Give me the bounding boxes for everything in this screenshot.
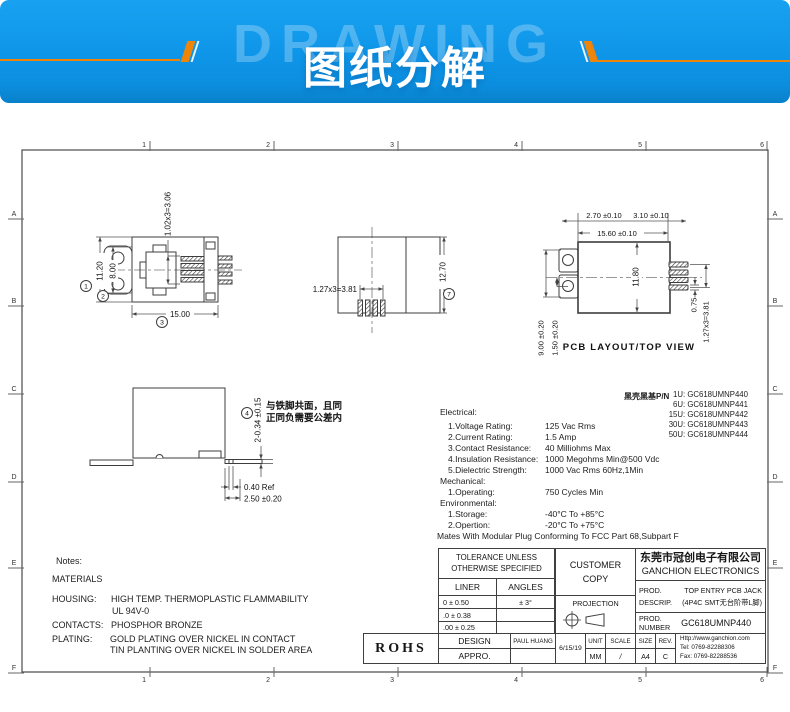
prod-label: PROD. [639, 585, 672, 597]
prod-descrip-cell: PROD. DESCRIP. TOP ENTRY PCB JACK (4P4C … [635, 580, 766, 613]
zone-top-6: 6 [760, 142, 764, 149]
zone-left-e: E [12, 560, 17, 567]
balloon-1: 1 [84, 284, 88, 291]
prod-descrip-value2: (4P4C SMT无台阶带L脚) [672, 597, 762, 609]
specs-mechanical-title: Mechanical: [440, 476, 485, 486]
customer-line2: COPY [570, 572, 621, 586]
spec-row: 1.Operating:750 Cycles Min [448, 487, 603, 497]
spec-label: 2.Current Rating: [448, 432, 545, 442]
spec-value: 125 Vac Rms [545, 421, 595, 431]
notes-materials: MATERIALS [52, 574, 102, 584]
zone-right-e: E [773, 560, 778, 567]
liner-header: LINER [438, 578, 497, 596]
spec-row: 4.Insulation Resistance:1000 Megohms Min… [448, 454, 659, 464]
tol-row2-liner: .0 ± 0.38 [438, 608, 497, 622]
spec-row: 3.Contact Resistance:40 Milliohms Max [448, 443, 611, 453]
balloon-7: 7 [447, 292, 451, 299]
design-label: DESIGN [438, 633, 511, 649]
spec-label: 2.Opertion: [448, 520, 545, 530]
dim-pcb-310: 3.10 ±0.10 [633, 211, 668, 220]
dim-pcb-150: 1.50 ±0.20 [551, 320, 560, 355]
spec-value: 40 Milliohms Max [545, 443, 611, 453]
notes-housing-value2: UL 94V-0 [112, 606, 149, 616]
notes-contacts-label: CONTACTS: [52, 620, 103, 630]
zone-right-b: B [773, 298, 778, 305]
rev-label: REV. [655, 633, 676, 649]
zone-bottom-4: 4 [514, 677, 518, 684]
date-cell: 6/15/19 [555, 633, 586, 664]
dim-side-250: 2.50 ±0.20 [244, 495, 282, 504]
zone-bottom-6: 6 [760, 677, 764, 684]
dim-pcb-270: 2.70 ±0.10 [586, 211, 621, 220]
tol-row1-angles: ± 3° [496, 595, 555, 609]
spec-label: 1.Storage: [448, 509, 545, 519]
spec-value: 1000 Vac Rms 60Hz,1Min [545, 465, 643, 475]
spec-label: 1.Operating: [448, 487, 545, 497]
dim-side-040ref: 0.40 Ref [244, 483, 275, 492]
company-name-en: GANCHION ELECTRONICS [640, 566, 761, 578]
notes-plating-label: PLATING: [52, 634, 92, 644]
projection-cell: PROJECTION [555, 595, 636, 634]
pn-item: 15U: GC618UMNP442 [620, 410, 748, 420]
scale-value: / [605, 648, 636, 664]
company-tel: Tel: 0769-82288306 [680, 644, 750, 653]
zone-bottom-2: 2 [266, 677, 270, 684]
tolerance-header: TOLERANCE UNLESS OTHERWISE SPECIFIED [438, 548, 555, 579]
spec-row: 1.Storage:-40°C To +85°C [448, 509, 604, 519]
spec-value: 1.5 Amp [545, 432, 576, 442]
zone-top-3: 3 [390, 142, 394, 149]
tol-row2-angles [496, 608, 555, 622]
zone-left-b: B [12, 298, 17, 305]
pn-item: 30U: GC618UMNP443 [620, 420, 748, 430]
pn-item: 6U: GC618UMNP441 [620, 400, 748, 410]
spec-label: 1.Voltage Rating: [448, 421, 545, 431]
dim-pcb-1180: 11.80 [632, 267, 641, 287]
dim-front-pitch: 1.27x3=3.81 [313, 285, 358, 294]
spec-row: 1.Voltage Rating:125 Vac Rms [448, 421, 595, 431]
dim-topview-pitch: 1.02x3=3.06 [164, 191, 173, 236]
view-side: 2-0.34 ±0.15 0.40 Ref 2.50 ±0.20 4 [90, 388, 282, 504]
pn-item: 50U: GC618UMNP444 [620, 430, 748, 440]
zone-top-2: 2 [266, 142, 270, 149]
rev-value: C [655, 648, 676, 664]
part-number-value: GC618UMNP440 [670, 618, 762, 628]
dim-pcb-075: 0.75 [690, 298, 699, 313]
view-front: 1.27x3=3.81 12.70 7 [313, 227, 455, 333]
spec-label: 4.Insulation Resistance: [448, 454, 545, 464]
size-label: SIZE [635, 633, 656, 649]
zone-right-c: C [772, 386, 777, 393]
prod-label2: PROD. [639, 614, 670, 623]
specs-environmental-title: Environmental: [440, 498, 497, 508]
dim-topview-inner: 8.00 [109, 263, 118, 279]
prod-descrip-value1: TOP ENTRY PCB JACK [672, 585, 762, 597]
view-pcb: 2.70 ±0.10 3.10 ±0.10 15.60 ±0.10 11.80 … [537, 211, 711, 356]
size-value: A4 [635, 648, 656, 664]
zone-top-1: 1 [142, 142, 146, 149]
company-cell: 东莞市冠创电子有限公司 GANCHION ELECTRONICS [635, 548, 766, 581]
spec-row: 2.Opertion:-20°C To +75°C [448, 520, 604, 530]
rohs-mark: ROHS [363, 633, 439, 664]
angles-header: ANGLES [496, 578, 555, 596]
appro-label: APPRO. [438, 648, 511, 664]
dim-topview-width: 15.00 [170, 310, 191, 319]
balloon-3: 3 [160, 320, 164, 327]
spec-label: 5.Dielectric Strength: [448, 465, 545, 475]
tolerance-line2: OTHERWISE SPECIFIED [451, 564, 541, 574]
zone-top-5: 5 [638, 142, 642, 149]
spec-value: 1000 Megohms Min@500 Vdc [545, 454, 659, 464]
notes-contacts-value: PHOSPHOR BRONZE [111, 620, 203, 630]
balloon-2: 2 [101, 294, 105, 301]
notes-plating-value2: TIN PLANTING OVER NICKEL IN SOLDER AREA [110, 645, 312, 655]
view-top: 11.20 8.00 15.00 1.02x3=3.06 1 2 3 [81, 191, 243, 327]
notes-housing-label: HOUSING: [52, 594, 97, 604]
zone-left-c: C [11, 386, 16, 393]
notes-housing-value1: HIGH TEMP. THERMOPLASTIC FLAMMABILITY [111, 594, 309, 604]
zone-left-f: F [12, 665, 16, 672]
appro-value [510, 648, 556, 664]
dim-side-034: 2-0.34 ±0.15 [254, 397, 263, 442]
customer-line1: CUSTOMER [570, 558, 621, 572]
specs-electrical-title: Electrical: [440, 407, 477, 417]
zone-right-a: A [773, 211, 778, 218]
zone-left-a: A [12, 211, 17, 218]
dim-pcb-1560: 15.60 ±0.10 [597, 229, 637, 238]
zone-bottom-1: 1 [142, 677, 146, 684]
zone-bottom-5: 5 [638, 677, 642, 684]
spec-label: 3.Contact Resistance: [448, 443, 545, 453]
zone-top-4: 4 [514, 142, 518, 149]
notes-title: Notes: [56, 556, 82, 566]
spec-value: -20°C To +75°C [545, 520, 604, 530]
scale-label: SCALE [605, 633, 636, 649]
tolerance-line1: TOLERANCE UNLESS [451, 553, 541, 563]
customer-copy-cell: CUSTOMER COPY [555, 548, 636, 596]
prod-number-cell: PROD. NUMBER GC618UMNP440 [635, 612, 766, 634]
spec-value: 750 Cycles Min [545, 487, 603, 497]
balloon-4: 4 [245, 411, 249, 418]
pcb-view-caption: PCB LAYOUT/TOP VIEW [563, 342, 695, 353]
spec-row: 5.Dielectric Strength:1000 Vac Rms 60Hz,… [448, 465, 643, 475]
unit-label: UNIT [585, 633, 606, 649]
side-view-note-line2: 正同负需要公差内 [266, 410, 342, 424]
spec-value: -40°C To +85°C [545, 509, 604, 519]
tol-row1-liner: 0 ± 0.50 [438, 595, 497, 609]
unit-value: MM [585, 648, 606, 664]
dim-topview-height: 11.20 [96, 261, 105, 281]
company-website: Http://www.ganchion.com [680, 635, 750, 644]
company-name-cn: 东莞市冠创电子有限公司 [640, 552, 761, 566]
dim-pcb-pitch: 1.27x3=3.81 [702, 301, 711, 343]
specs-mates-note: Mates With Modular Plug Conforming To FC… [437, 531, 679, 541]
pn-item: 1U: GC618UMNP440 [620, 390, 748, 400]
number-label: NUMBER [639, 623, 670, 632]
designer-name: PAUL HUANG [510, 633, 556, 649]
zone-bottom-3: 3 [390, 677, 394, 684]
company-fax: Fax: 0769-82288536 [680, 653, 750, 662]
zone-right-f: F [773, 665, 777, 672]
page: DRAWING 图纸分解 [0, 0, 790, 712]
dim-pcb-900: 9.00 ±0.20 [537, 320, 546, 355]
notes-plating-value1: GOLD PLATING OVER NICKEL IN CONTACT [110, 634, 295, 644]
zone-left-d: D [11, 474, 16, 481]
zone-right-d: D [772, 474, 777, 481]
spec-row: 2.Current Rating:1.5 Amp [448, 432, 576, 442]
contact-cell: Http://www.ganchion.com Tel: 0769-822883… [675, 633, 766, 664]
dim-front-height: 12.70 [439, 261, 448, 282]
descrip-label: DESCRIP. [639, 597, 672, 609]
pn-list: 1U: GC618UMNP440 6U: GC618UMNP441 15U: G… [620, 390, 748, 440]
